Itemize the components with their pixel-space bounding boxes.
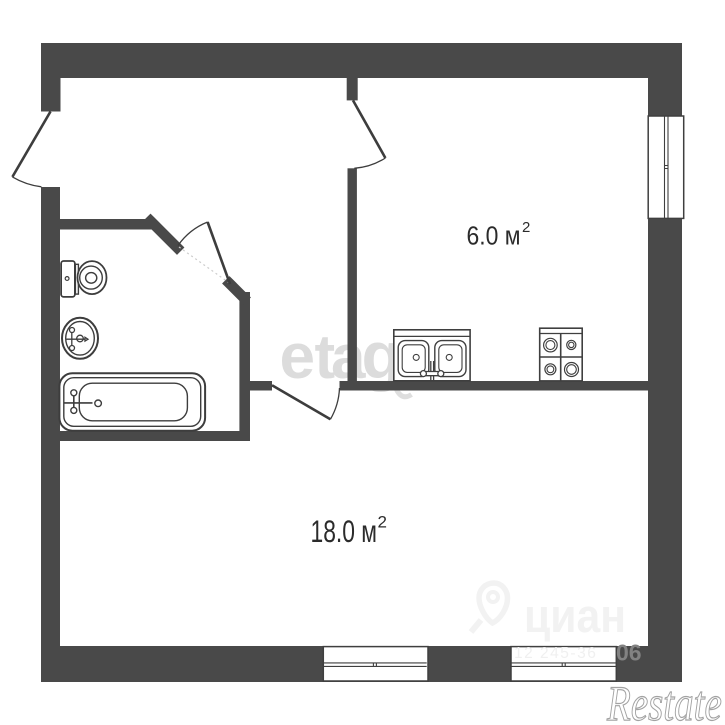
svg-text:2: 2 [378,513,387,532]
svg-text:06: 06 [616,640,642,666]
svg-text:12 245-36: 12 245-36 [514,645,597,662]
svg-text:циан: циан [524,589,626,642]
svg-text:6.0 м: 6.0 м [467,223,521,251]
svg-text:18.0 м: 18.0 м [311,513,378,549]
svg-text:Restate: Restate [606,675,722,725]
svg-text:e: e [280,320,316,392]
svg-text:2: 2 [522,219,530,236]
